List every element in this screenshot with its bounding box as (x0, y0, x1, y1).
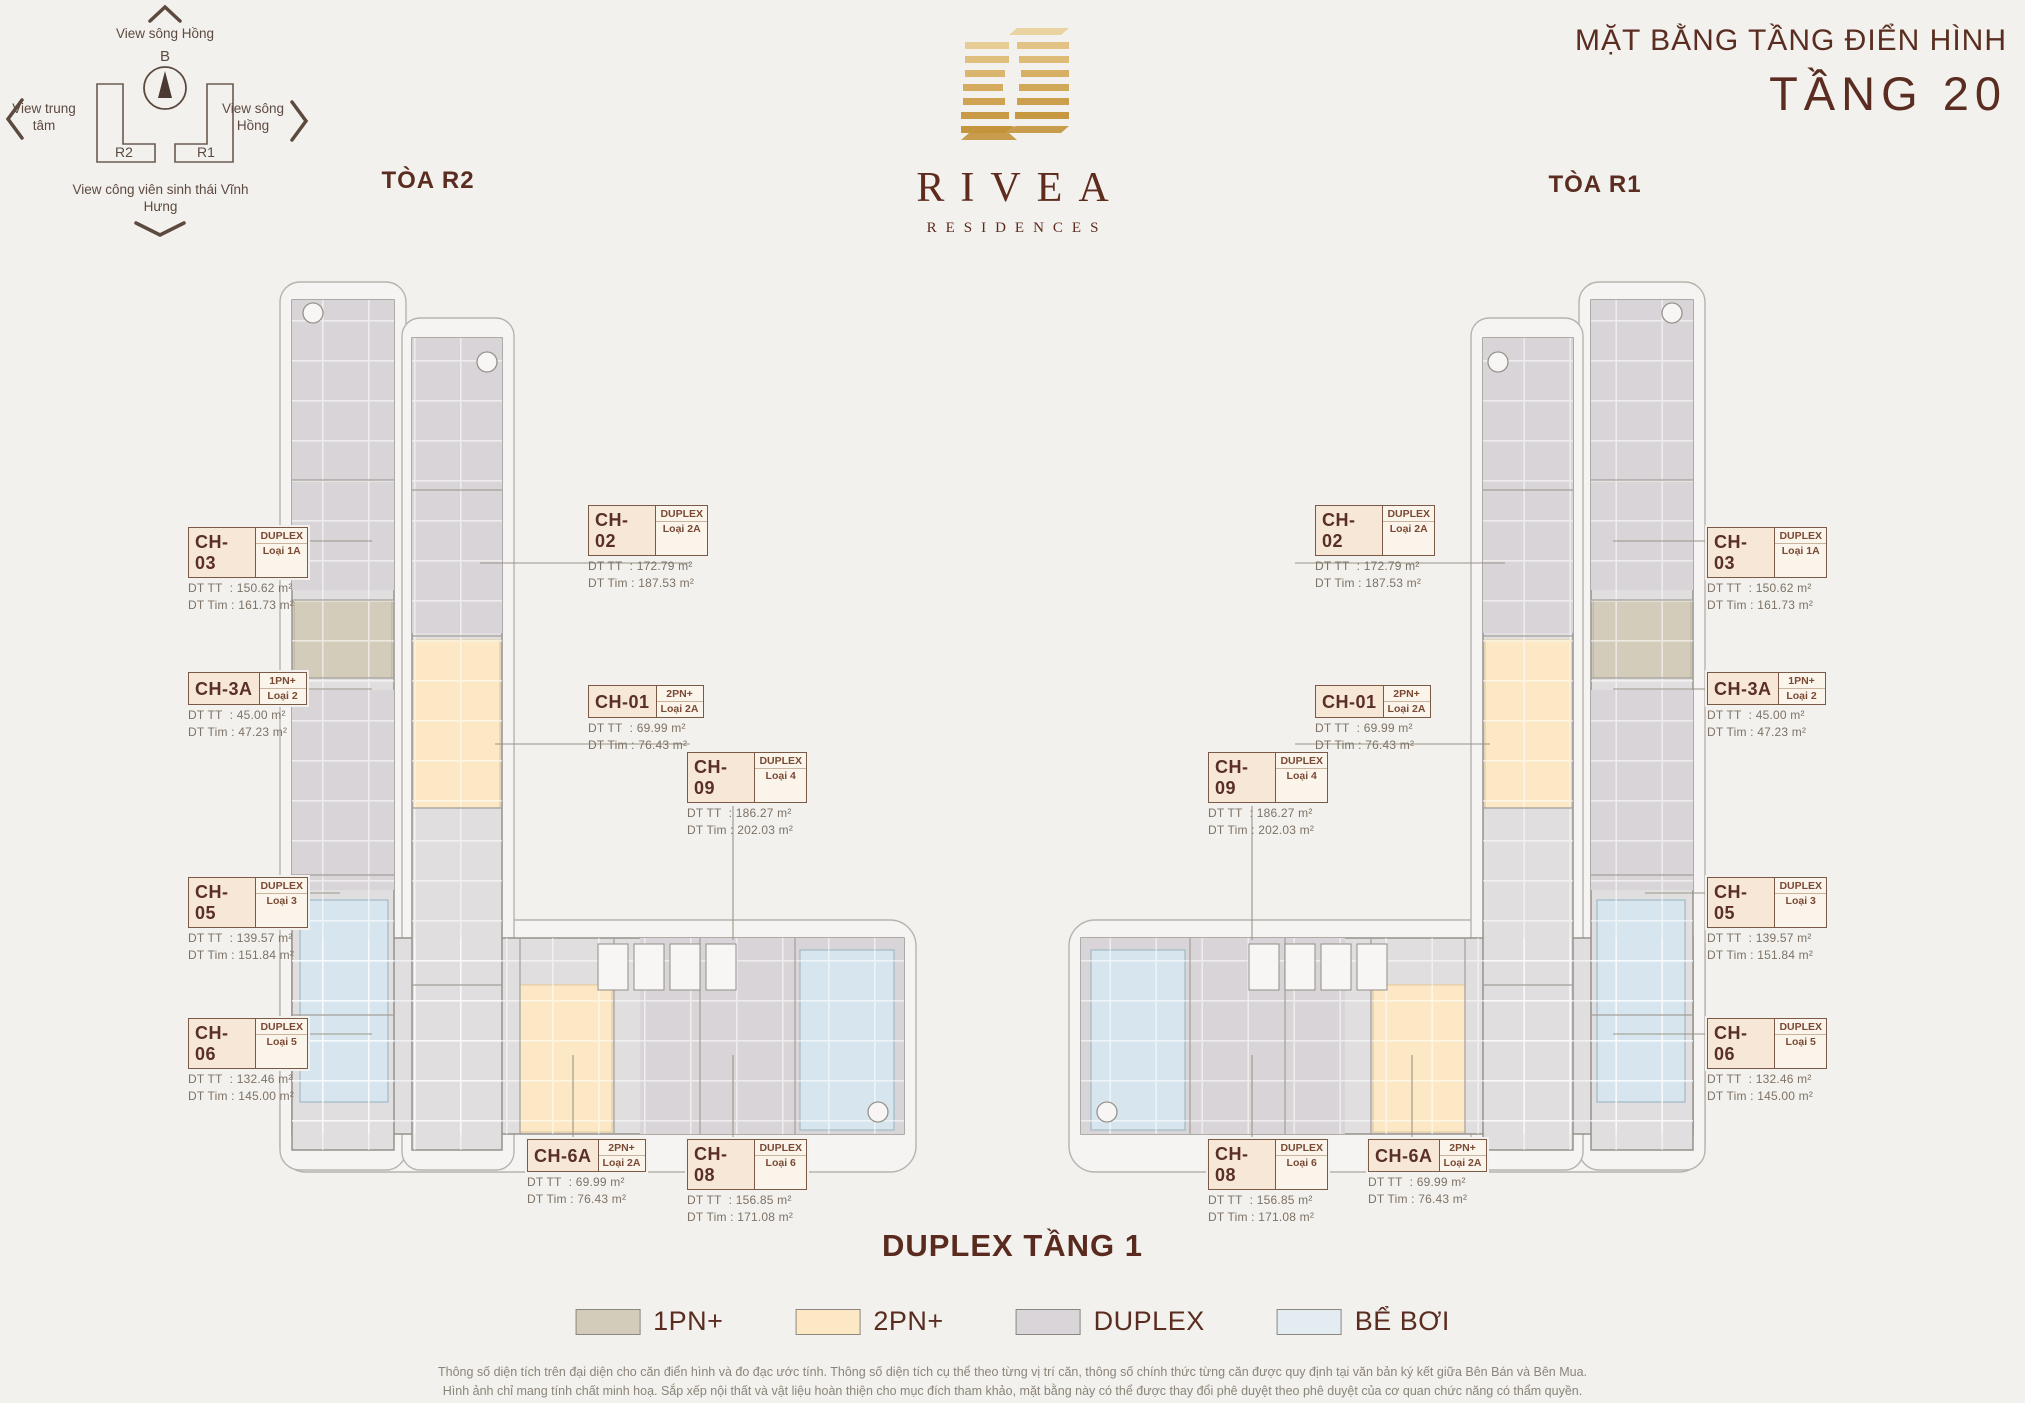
unit-area-tt: DT TT : 150.62 m² (1707, 581, 1827, 595)
unit-loai: Loại 4 (1276, 769, 1327, 784)
unit-label-r1-ch-01: CH-012PN+Loại 2ADT TT : 69.99 m²DT Tim :… (1315, 685, 1435, 752)
unit-area-tt: DT TT : 69.99 m² (1315, 721, 1435, 735)
unit-type: DUPLEX (256, 1019, 307, 1035)
unit-label-box: CH-02DUPLEXLoại 2A (1315, 505, 1435, 556)
unit-area-tt: DT TT : 139.57 m² (1707, 931, 1827, 945)
unit-area-tim: DT Tim : 76.43 m² (1368, 1192, 1488, 1206)
unit-area-tt: DT TT : 69.99 m² (527, 1175, 647, 1189)
unit-code: CH-05 (1708, 878, 1774, 927)
unit-type-cell: 2PN+Loại 2A (1383, 686, 1430, 717)
unit-code: CH-06 (1708, 1019, 1774, 1068)
unit-area-tim: DT Tim : 145.00 m² (188, 1089, 308, 1103)
unit-area-tt: DT TT : 69.99 m² (588, 721, 708, 735)
unit-area-tt: DT TT : 132.46 m² (188, 1072, 308, 1086)
unit-label-r1-ch-08: CH-08DUPLEXLoại 6DT TT : 156.85 m²DT Tim… (1208, 1139, 1328, 1224)
unit-loai: Loại 2 (1779, 689, 1825, 704)
unit-label-r2-ch-09: CH-09DUPLEXLoại 4DT TT : 186.27 m²DT Tim… (687, 752, 807, 837)
unit-code: CH-6A (1369, 1140, 1439, 1171)
unit-label-r2-ch-3a: CH-3A1PN+Loại 2DT TT : 45.00 m²DT Tim : … (188, 672, 308, 739)
unit-area-tim: DT Tim : 151.84 m² (1707, 948, 1827, 962)
unit-label-r2-ch-6a: CH-6A2PN+Loại 2ADT TT : 69.99 m²DT Tim :… (527, 1139, 647, 1206)
unit-area-tim: DT Tim : 202.03 m² (1208, 823, 1328, 837)
unit-loai: Loại 5 (1775, 1035, 1826, 1050)
unit-label-box: CH-05DUPLEXLoại 3 (188, 877, 308, 928)
unit-label-box: CH-012PN+Loại 2A (588, 685, 704, 718)
unit-area-tim: DT Tim : 47.23 m² (188, 725, 308, 739)
unit-code: CH-6A (528, 1140, 598, 1171)
unit-area-tim: DT Tim : 171.08 m² (1208, 1210, 1328, 1224)
unit-code: CH-06 (189, 1019, 255, 1068)
unit-type: DUPLEX (755, 753, 806, 769)
unit-area-tt: DT TT : 172.79 m² (588, 559, 708, 573)
unit-type-cell: DUPLEXLoại 2A (655, 506, 707, 555)
unit-loai: Loại 1A (256, 544, 307, 559)
unit-type-cell: 1PN+Loại 2 (1778, 673, 1825, 704)
unit-label-box: CH-03DUPLEXLoại 1A (1707, 527, 1827, 578)
unit-label-r2-ch-01: CH-012PN+Loại 2ADT TT : 69.99 m²DT Tim :… (588, 685, 708, 752)
unit-label-box: CH-08DUPLEXLoại 6 (1208, 1139, 1328, 1190)
unit-code: CH-09 (1209, 753, 1275, 802)
unit-type-cell: DUPLEXLoại 2A (1382, 506, 1434, 555)
unit-loai: Loại 3 (256, 894, 307, 909)
unit-area-tt: DT TT : 45.00 m² (1707, 708, 1827, 722)
unit-loai: Loại 1A (1775, 544, 1826, 559)
unit-label-r2-ch-05: CH-05DUPLEXLoại 3DT TT : 139.57 m²DT Tim… (188, 877, 308, 962)
unit-code: CH-01 (589, 686, 656, 717)
unit-label-r1-ch-6a: CH-6A2PN+Loại 2ADT TT : 69.99 m²DT Tim :… (1368, 1139, 1488, 1206)
unit-area-tt: DT TT : 132.46 m² (1707, 1072, 1827, 1086)
unit-area-tim: DT Tim : 187.53 m² (588, 576, 708, 590)
unit-label-box: CH-3A1PN+Loại 2 (1707, 672, 1826, 705)
unit-label-box: CH-08DUPLEXLoại 6 (687, 1139, 807, 1190)
unit-type: 2PN+ (599, 1140, 645, 1156)
unit-type-cell: DUPLEXLoại 1A (1774, 528, 1826, 577)
unit-loai: Loại 2 (260, 689, 306, 704)
unit-label-box: CH-09DUPLEXLoại 4 (687, 752, 807, 803)
unit-label-r2-ch-08: CH-08DUPLEXLoại 6DT TT : 156.85 m²DT Tim… (687, 1139, 807, 1224)
unit-code: CH-02 (1316, 506, 1382, 555)
unit-type: DUPLEX (256, 528, 307, 544)
unit-type: 1PN+ (260, 673, 306, 689)
unit-label-box: CH-06DUPLEXLoại 5 (1707, 1018, 1827, 1069)
unit-area-tt: DT TT : 156.85 m² (1208, 1193, 1328, 1207)
unit-loai: Loại 2A (1440, 1156, 1486, 1171)
unit-label-r2-ch-02: CH-02DUPLEXLoại 2ADT TT : 172.79 m²DT Ti… (588, 505, 708, 590)
unit-label-r1-ch-3a: CH-3A1PN+Loại 2DT TT : 45.00 m²DT Tim : … (1707, 672, 1827, 739)
unit-label-box: CH-09DUPLEXLoại 4 (1208, 752, 1328, 803)
unit-type: 1PN+ (1779, 673, 1825, 689)
unit-label-r1-ch-03: CH-03DUPLEXLoại 1ADT TT : 150.62 m²DT Ti… (1707, 527, 1827, 612)
unit-area-tt: DT TT : 186.27 m² (687, 806, 807, 820)
unit-label-r1-ch-09: CH-09DUPLEXLoại 4DT TT : 186.27 m²DT Tim… (1208, 752, 1328, 837)
unit-area-tt: DT TT : 45.00 m² (188, 708, 308, 722)
unit-code: CH-3A (189, 673, 259, 704)
unit-loai: Loại 2A (656, 522, 707, 537)
unit-label-r2-ch-06: CH-06DUPLEXLoại 5DT TT : 132.46 m²DT Tim… (188, 1018, 308, 1103)
unit-type-cell: DUPLEXLoại 4 (1275, 753, 1327, 802)
unit-area-tim: DT Tim : 161.73 m² (188, 598, 308, 612)
unit-label-box: CH-03DUPLEXLoại 1A (188, 527, 308, 578)
unit-label-r1-ch-05: CH-05DUPLEXLoại 3DT TT : 139.57 m²DT Tim… (1707, 877, 1827, 962)
unit-code: CH-03 (189, 528, 255, 577)
unit-type: DUPLEX (1276, 753, 1327, 769)
unit-area-tim: DT Tim : 145.00 m² (1707, 1089, 1827, 1103)
unit-label-box: CH-3A1PN+Loại 2 (188, 672, 307, 705)
unit-area-tt: DT TT : 69.99 m² (1368, 1175, 1488, 1189)
unit-area-tt: DT TT : 186.27 m² (1208, 806, 1328, 820)
unit-type-cell: 2PN+Loại 2A (1439, 1140, 1486, 1171)
unit-area-tim: DT Tim : 76.43 m² (1315, 738, 1435, 752)
unit-label-r1-ch-06: CH-06DUPLEXLoại 5DT TT : 132.46 m²DT Tim… (1707, 1018, 1827, 1103)
unit-type: 2PN+ (657, 686, 703, 702)
unit-type: DUPLEX (1775, 1019, 1826, 1035)
unit-loai: Loại 5 (256, 1035, 307, 1050)
unit-label-box: CH-05DUPLEXLoại 3 (1707, 877, 1827, 928)
unit-type: DUPLEX (1383, 506, 1434, 522)
unit-label-box: CH-02DUPLEXLoại 2A (588, 505, 708, 556)
unit-type-cell: 2PN+Loại 2A (656, 686, 703, 717)
unit-type: DUPLEX (656, 506, 707, 522)
unit-area-tim: DT Tim : 47.23 m² (1707, 725, 1827, 739)
unit-area-tim: DT Tim : 161.73 m² (1707, 598, 1827, 612)
unit-label-box: CH-6A2PN+Loại 2A (527, 1139, 646, 1172)
unit-code: CH-09 (688, 753, 754, 802)
unit-type: DUPLEX (1775, 528, 1826, 544)
unit-area-tim: DT Tim : 76.43 m² (527, 1192, 647, 1206)
unit-type: DUPLEX (1276, 1140, 1327, 1156)
unit-type-cell: 1PN+Loại 2 (259, 673, 306, 704)
unit-loai: Loại 2A (657, 702, 703, 717)
unit-code: CH-08 (1209, 1140, 1275, 1189)
unit-label-box: CH-012PN+Loại 2A (1315, 685, 1431, 718)
unit-loai: Loại 4 (755, 769, 806, 784)
unit-label-r1-ch-02: CH-02DUPLEXLoại 2ADT TT : 172.79 m²DT Ti… (1315, 505, 1435, 590)
unit-type: DUPLEX (1775, 878, 1826, 894)
unit-code: CH-03 (1708, 528, 1774, 577)
unit-loai: Loại 2A (599, 1156, 645, 1171)
unit-area-tim: DT Tim : 202.03 m² (687, 823, 807, 837)
unit-area-tt: DT TT : 156.85 m² (687, 1193, 807, 1207)
unit-code: CH-01 (1316, 686, 1383, 717)
unit-area-tim: DT Tim : 171.08 m² (687, 1210, 807, 1224)
unit-area-tim: DT Tim : 187.53 m² (1315, 576, 1435, 590)
unit-loai: Loại 6 (1276, 1156, 1327, 1171)
unit-type: 2PN+ (1440, 1140, 1486, 1156)
unit-type-cell: DUPLEXLoại 3 (255, 878, 307, 927)
unit-area-tt: DT TT : 150.62 m² (188, 581, 308, 595)
unit-type-cell: DUPLEXLoại 5 (255, 1019, 307, 1068)
unit-loai: Loại 2A (1383, 522, 1434, 537)
unit-type-cell: 2PN+Loại 2A (598, 1140, 645, 1171)
unit-area-tt: DT TT : 139.57 m² (188, 931, 308, 945)
unit-type: 2PN+ (1384, 686, 1430, 702)
unit-area-tim: DT Tim : 76.43 m² (588, 738, 708, 752)
unit-label-r2-ch-03: CH-03DUPLEXLoại 1ADT TT : 150.62 m²DT Ti… (188, 527, 308, 612)
unit-loai: Loại 3 (1775, 894, 1826, 909)
unit-type-cell: DUPLEXLoại 5 (1774, 1019, 1826, 1068)
unit-type-cell: DUPLEXLoại 3 (1774, 878, 1826, 927)
unit-loai: Loại 6 (755, 1156, 806, 1171)
unit-area-tim: DT Tim : 151.84 m² (188, 948, 308, 962)
unit-type-cell: DUPLEXLoại 6 (754, 1140, 806, 1189)
unit-code: CH-3A (1708, 673, 1778, 704)
unit-labels-layer: CH-03DUPLEXLoại 1ADT TT : 150.62 m²DT Ti… (0, 0, 2025, 1403)
unit-type-cell: DUPLEXLoại 6 (1275, 1140, 1327, 1189)
unit-code: CH-08 (688, 1140, 754, 1189)
unit-code: CH-05 (189, 878, 255, 927)
unit-label-box: CH-06DUPLEXLoại 5 (188, 1018, 308, 1069)
unit-type-cell: DUPLEXLoại 4 (754, 753, 806, 802)
brochure-page: R2 R1 View sông Hồng B View trung tâm Vi… (0, 0, 2025, 1403)
unit-type: DUPLEX (755, 1140, 806, 1156)
unit-code: CH-02 (589, 506, 655, 555)
unit-type-cell: DUPLEXLoại 1A (255, 528, 307, 577)
unit-label-box: CH-6A2PN+Loại 2A (1368, 1139, 1487, 1172)
unit-loai: Loại 2A (1384, 702, 1430, 717)
unit-area-tt: DT TT : 172.79 m² (1315, 559, 1435, 573)
unit-type: DUPLEX (256, 878, 307, 894)
